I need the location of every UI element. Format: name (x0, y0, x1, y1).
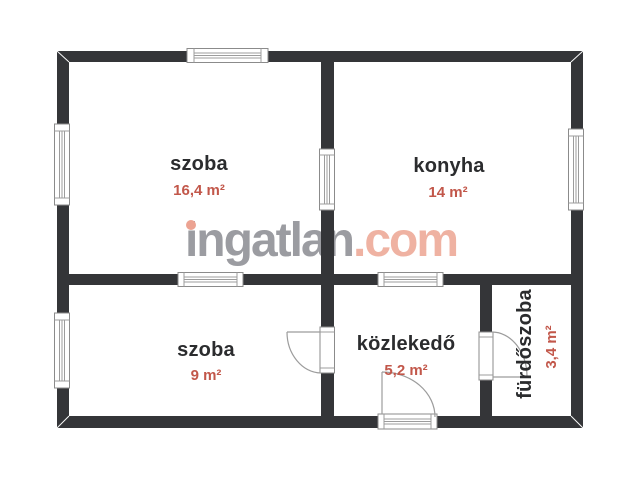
room-area-szoba-small: 9 m² (191, 367, 222, 384)
door-frame (320, 327, 335, 373)
window-right (569, 129, 584, 210)
window-konyha-kozlekedo (378, 273, 443, 287)
wall-top (57, 51, 583, 62)
wall-bottom (57, 416, 583, 428)
room-label-szoba-small: szoba (177, 339, 235, 361)
floor-plan-page: ingatlan.com (0, 0, 640, 480)
watermark-i-dot (186, 220, 196, 230)
wall-right (571, 51, 583, 428)
room-area-furdoszoba: 3,4 m² (543, 325, 560, 368)
watermark-tld: .com (353, 214, 457, 267)
window-szoba-szoba (178, 273, 243, 287)
door-frame (479, 332, 493, 380)
wall-middle-horizontal (57, 274, 583, 285)
floor-plan: ingatlan.com (0, 0, 640, 480)
door-swing-arc (287, 332, 321, 373)
window-left-lower (55, 313, 70, 388)
room-area-kozlekedo: 5,2 m² (384, 362, 427, 379)
room-label-konyha: konyha (413, 155, 485, 177)
room-area-szoba-large: 16,4 m² (173, 182, 225, 199)
window-left-upper (55, 124, 70, 205)
door-entry (378, 372, 437, 429)
door-szoba (287, 327, 335, 373)
room-label-kozlekedo: közlekedő (357, 333, 456, 355)
room-label-szoba-large: szoba (170, 153, 228, 175)
room-area-konyha: 14 m² (428, 184, 467, 201)
room-label-furdoszoba: fürdőszoba (514, 288, 536, 398)
window-top (187, 49, 268, 63)
window-szoba-konyha (320, 149, 335, 210)
